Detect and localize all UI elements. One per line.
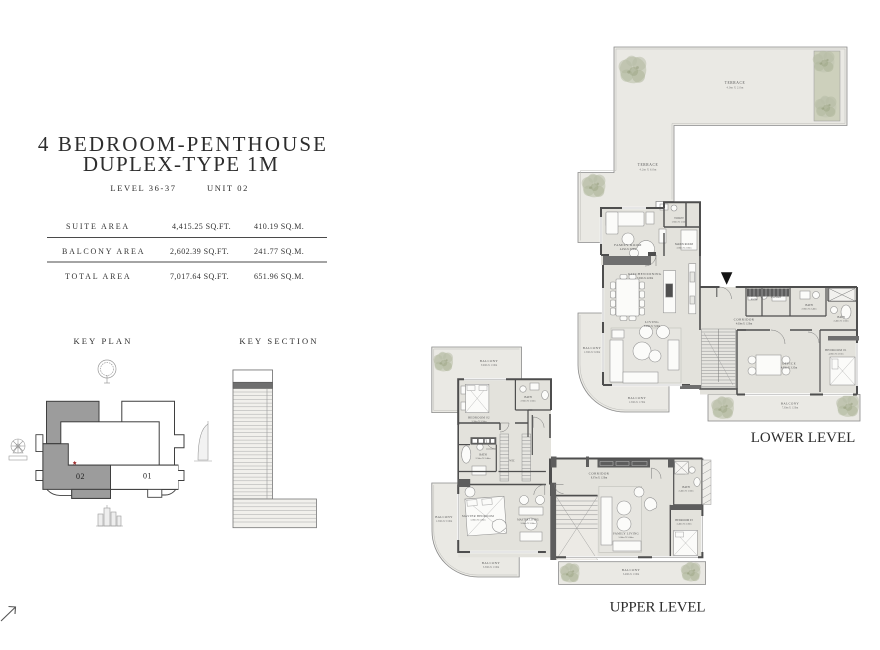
svg-text:BEDROOM 02: BEDROOM 02	[468, 416, 490, 420]
svg-text:BALCONY: BALCONY	[583, 346, 602, 350]
svg-text:5.00m X 5.00m: 5.00m X 5.00m	[470, 519, 485, 522]
svg-text:7.30m X 1.50m: 7.30m X 1.50m	[782, 407, 798, 410]
svg-text:2.00m X 2.40m: 2.00m X 2.40m	[801, 308, 816, 311]
svg-text:BALCONY AREA: BALCONY AREA	[62, 247, 145, 256]
svg-text:4.00m X 1.50m: 4.00m X 1.50m	[736, 323, 752, 326]
svg-text:DUPLEX-TYPE 1M: DUPLEX-TYPE 1M	[83, 152, 279, 176]
svg-text:2.40m X 1.50m: 2.40m X 1.50m	[833, 320, 848, 323]
svg-text:LIVING: LIVING	[645, 320, 659, 324]
svg-text:2.60m X 1.50m: 2.60m X 1.50m	[520, 400, 535, 403]
svg-text:410.19 SQ.M.: 410.19 SQ.M.	[254, 222, 304, 231]
svg-text:4.00m X 3.10m: 4.00m X 3.10m	[828, 353, 843, 356]
svg-text:FAMILY ROOM: FAMILY ROOM	[614, 243, 642, 247]
svg-text:KEY PLAN: KEY PLAN	[73, 336, 132, 346]
svg-text:CORRIDOR: CORRIDOR	[589, 472, 610, 476]
svg-text:OFFICE: OFFICE	[782, 362, 796, 366]
svg-text:LEVEL 36-37: LEVEL 36-37	[110, 183, 176, 193]
svg-text:241.77 SQ.M.: 241.77 SQ.M.	[254, 247, 304, 256]
svg-text:FAMILY LIVING: FAMILY LIVING	[613, 532, 639, 536]
svg-text:CORRIDOR: CORRIDOR	[734, 318, 755, 322]
svg-text:2.40m X 1.50m: 2.40m X 1.50m	[678, 490, 693, 493]
svg-text:7.00m X 4.00m: 7.00m X 4.00m	[637, 277, 653, 280]
svg-text:4.45m X 3.90m: 4.45m X 3.90m	[620, 248, 636, 251]
svg-text:POWDER: POWDER	[749, 296, 759, 298]
svg-text:4.0m X 2.0m: 4.0m X 2.0m	[727, 87, 745, 90]
svg-text:BEDROOM 01: BEDROOM 01	[825, 348, 847, 352]
svg-text:SUITE AREA: SUITE AREA	[66, 222, 130, 231]
svg-text:5.40m X 1.50m: 5.40m X 1.50m	[623, 573, 639, 576]
svg-text:UNIT 02: UNIT 02	[207, 183, 249, 193]
svg-text:BALCONY: BALCONY	[482, 561, 501, 565]
svg-text:MASTER BEDROOM: MASTER BEDROOM	[462, 514, 494, 518]
svg-text:02: 02	[76, 472, 85, 481]
svg-text:KEY SECTION: KEY SECTION	[239, 336, 318, 346]
svg-text:4.2m X 6.0m: 4.2m X 6.0m	[640, 169, 658, 172]
svg-text:01: 01	[143, 472, 152, 481]
svg-text:3.00m X 2.00m: 3.00m X 2.00m	[676, 247, 691, 250]
svg-text:4,415.25 SQ.FT.: 4,415.25 SQ.FT.	[172, 222, 231, 231]
svg-text:651.96 SQ.M.: 651.96 SQ.M.	[254, 272, 304, 281]
svg-text:3.30m X 3.50m: 3.30m X 3.50m	[471, 420, 486, 423]
svg-text:TERRACE: TERRACE	[638, 163, 659, 167]
svg-text:1.50m X 5.00m: 1.50m X 5.00m	[584, 351, 600, 354]
svg-text:5.30m X 1.50m: 5.30m X 1.50m	[483, 566, 499, 569]
svg-text:TOTAL AREA: TOTAL AREA	[65, 272, 131, 281]
svg-text:1.50m X 1.70m: 1.50m X 1.70m	[629, 401, 645, 404]
svg-text:BALCONY: BALCONY	[435, 515, 453, 519]
svg-text:ROOM: ROOM	[751, 299, 758, 301]
svg-text:8.37m X 1.50m: 8.37m X 1.50m	[591, 477, 607, 480]
svg-text:5.00m X 7.00m: 5.00m X 7.00m	[644, 325, 660, 328]
svg-text:WIC: WIC	[509, 460, 515, 463]
svg-text:3.00m X 3.00m: 3.00m X 3.00m	[520, 522, 535, 525]
svg-text:LAUNDRY: LAUNDRY	[771, 296, 782, 299]
svg-text:3.90m X 1.50m: 3.90m X 1.50m	[481, 364, 497, 367]
svg-text:5.00m X 5.00m: 5.00m X 5.00m	[618, 536, 633, 539]
svg-text:2.50m X 2.40m: 2.50m X 2.40m	[475, 457, 490, 460]
svg-text:1.60m X 1.50m: 1.60m X 1.50m	[671, 221, 686, 224]
svg-text:BALCONY: BALCONY	[622, 568, 641, 572]
svg-text:TERRACE: TERRACE	[725, 81, 746, 85]
svg-text:7,017.64 SQ.FT.: 7,017.64 SQ.FT.	[170, 272, 229, 281]
svg-text:BALCONY: BALCONY	[480, 359, 499, 363]
svg-text:3.40m X 3.30m: 3.40m X 3.30m	[676, 523, 691, 526]
svg-text:4.00m X 3.35m: 4.00m X 3.35m	[781, 367, 797, 370]
svg-text:LOWER LEVEL: LOWER LEVEL	[751, 430, 856, 446]
svg-text:BALCONY: BALCONY	[628, 396, 647, 400]
svg-text:1.50m X 5.50m: 1.50m X 5.50m	[436, 520, 452, 523]
svg-text:UPPER LEVEL: UPPER LEVEL	[610, 600, 706, 616]
svg-text:BALCONY: BALCONY	[781, 402, 800, 406]
svg-text:KITCHEN/DINING: KITCHEN/DINING	[628, 272, 662, 276]
svg-text:2,602.39 SQ.FT.: 2,602.39 SQ.FT.	[170, 247, 229, 256]
